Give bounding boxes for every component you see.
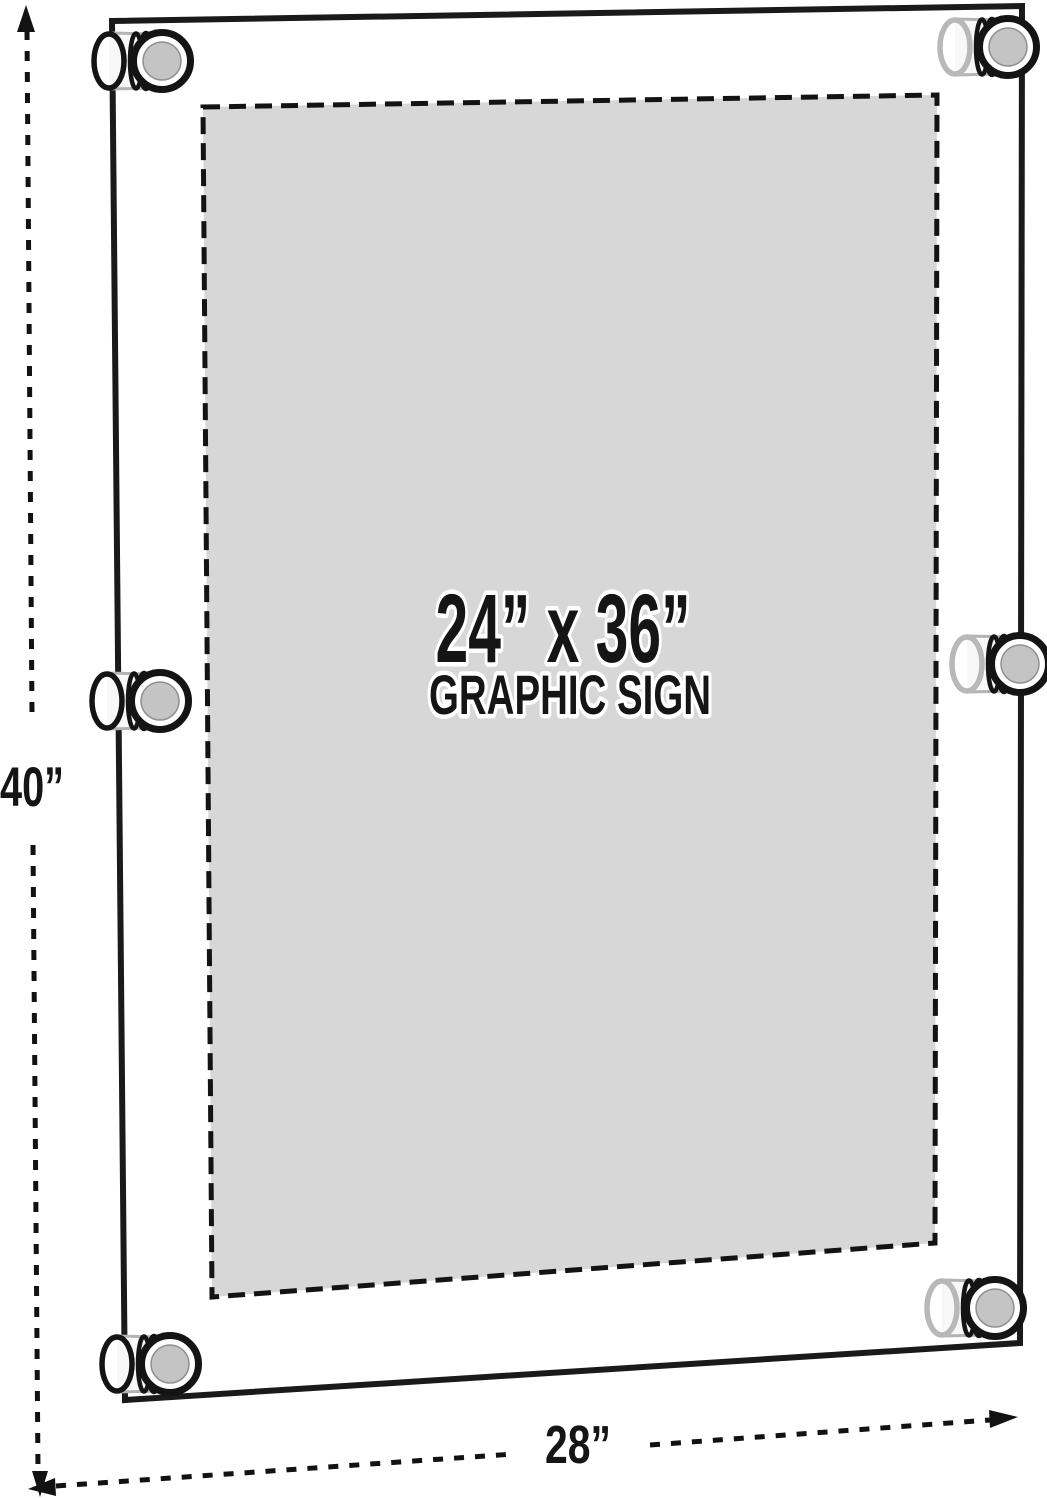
sign-holder-diagram: 24” x 36” GRAPHIC SIGN 40” 28”: [0, 0, 1047, 1500]
height-dimension-line-lower: [33, 845, 38, 1470]
width-dimension: 28”: [28, 1410, 1018, 1496]
sign-type-label: GRAPHIC SIGN: [429, 663, 711, 726]
height-dimension: 40”: [0, 5, 64, 1497]
standoff-middle-left: [92, 672, 189, 730]
width-dimension-line-right: [650, 1420, 990, 1445]
standoff-bottom-left: [102, 1335, 199, 1393]
height-dimension-line-upper: [27, 30, 32, 715]
arrow-right-icon: [989, 1410, 1018, 1428]
arrow-up-icon: [17, 5, 35, 32]
width-dimension-label: 28”: [545, 1415, 611, 1475]
standoff-top-left: [94, 32, 191, 90]
width-dimension-line-left: [56, 1454, 514, 1486]
height-dimension-label: 40”: [0, 755, 64, 818]
